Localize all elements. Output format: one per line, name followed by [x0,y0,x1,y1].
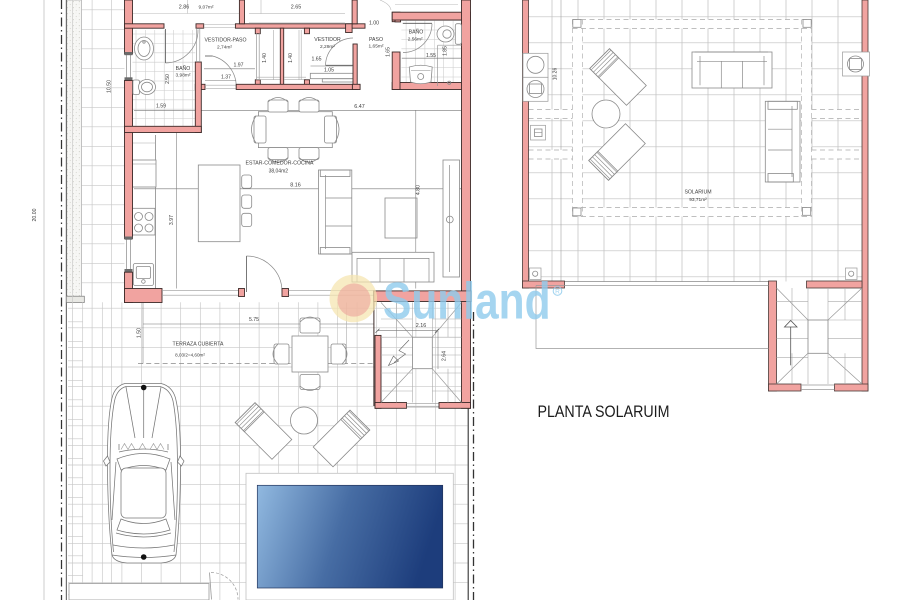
svg-text:2,74m²: 2,74m² [217,45,232,51]
svg-text:10.26: 10.26 [553,68,559,81]
svg-text:R: R [555,289,560,296]
svg-text:2.86: 2.86 [179,5,190,11]
svg-text:8,03/2=4,60m²: 8,03/2=4,60m² [175,353,205,358]
svg-text:VESTIDOR-PASO: VESTIDOR-PASO [205,38,247,44]
svg-text:2.64: 2.64 [442,351,448,361]
svg-text:20.00: 20.00 [32,208,38,221]
svg-text:1.37: 1.37 [221,75,231,81]
svg-text:VESTIDOR: VESTIDOR [314,37,341,43]
svg-text:2,56m²: 2,56m² [408,37,423,43]
svg-text:1.85: 1.85 [443,46,449,56]
svg-text:5.75: 5.75 [249,317,259,323]
svg-text:2.50: 2.50 [165,74,171,84]
svg-text:Sunland: Sunland [383,273,551,331]
svg-text:1.65: 1.65 [386,47,392,57]
svg-text:TERRAZA CUBIERTA: TERRAZA CUBIERTA [173,342,225,348]
svg-text:ESTAR-COMEDOR-COCINA: ESTAR-COMEDOR-COCINA [246,161,314,167]
svg-text:38,04m2: 38,04m2 [269,169,289,175]
svg-text:PASO: PASO [369,37,383,43]
svg-text:93,71m²: 93,71m² [689,197,707,203]
svg-text:1.65: 1.65 [311,57,321,63]
svg-text:9,07m²: 9,07m² [199,5,214,11]
svg-text:1,65m²: 1,65m² [369,44,384,50]
svg-text:PLANTA SOLARUIM: PLANTA SOLARUIM [538,403,670,421]
svg-text:1.00: 1.00 [369,21,379,27]
svg-text:BAÑO: BAÑO [409,29,424,36]
svg-text:SOLARIUM: SOLARIUM [684,190,711,196]
svg-text:3,98m²: 3,98m² [176,73,191,79]
svg-text:1.97: 1.97 [233,63,243,69]
svg-text:1.05: 1.05 [324,68,334,74]
svg-text:8.16: 8.16 [290,183,301,189]
svg-text:1.59: 1.59 [156,104,166,110]
svg-text:6.47: 6.47 [354,104,365,110]
svg-text:2,29m²: 2,29m² [320,44,335,50]
svg-text:4.80: 4.80 [416,185,422,195]
svg-text:1.40: 1.40 [262,53,268,63]
svg-text:10.50: 10.50 [107,80,113,93]
svg-text:1.55: 1.55 [426,53,436,59]
svg-text:BAÑO: BAÑO [176,65,191,72]
svg-text:2.65: 2.65 [291,5,302,11]
svg-text:1.50: 1.50 [137,328,143,338]
svg-text:3.97: 3.97 [169,215,175,225]
svg-text:1.40: 1.40 [288,53,294,63]
